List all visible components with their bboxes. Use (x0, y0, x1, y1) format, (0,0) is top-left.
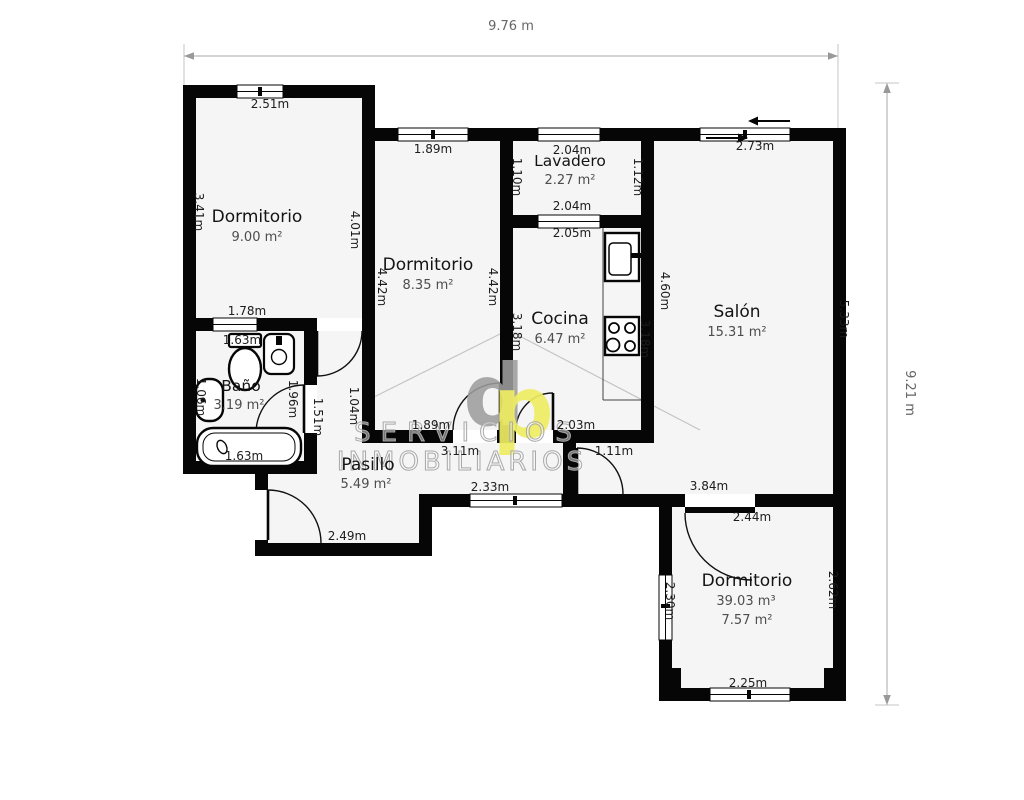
dim-cocina-top: 2.05m (553, 226, 591, 240)
dim-bano-top: 1.78m (228, 304, 266, 318)
arrow-left-icon (184, 52, 194, 60)
dim-dorm3-top: 2.44m (733, 510, 771, 524)
overall-height-label: 9.21 m (902, 370, 917, 416)
dim-cocina-left: 3.18m (510, 313, 524, 351)
dim-salon-right: 5.33m (837, 300, 851, 338)
dim-dorm2-bottom: 1.89m (412, 418, 450, 432)
overall-width-label: 9.76 m (488, 19, 534, 34)
dim-pasillo-mid: 3.11m (441, 444, 479, 458)
dim-bano-top-inner: 1.63m (223, 333, 261, 347)
room-name-cocina: Cocina (531, 309, 589, 329)
window-dormitorio2-icon (398, 128, 468, 141)
floorplan-drawing: 9.76 m 9.21 m (0, 0, 1024, 800)
room-name-dormitorio2: Dormitorio (383, 255, 474, 275)
dim-lavadero-bottom: 2.04m (553, 199, 591, 213)
window-pasillo-icon (470, 494, 562, 507)
dim-hall-right: 3.84m (690, 479, 728, 493)
dim-dorm1-left: 3.41m (192, 193, 206, 231)
dim-pasillo-window: 2.33m (471, 480, 509, 494)
room-name-salon: Salón (713, 302, 760, 322)
dim-lavadero-right: 1.12m (631, 158, 645, 196)
dim-pasillo-left: 1.51m (311, 398, 325, 436)
arrow-up-icon (883, 83, 891, 93)
dim-dorm2-right: 4.42m (486, 268, 500, 306)
dim-dorm3-bottom: 2.25m (729, 676, 767, 690)
dim-bano-left: 1.06m (194, 378, 208, 416)
room-name-dormitorio3: Dormitorio (702, 571, 793, 591)
dim-dorm3-left: 2.30m (663, 582, 677, 620)
dimension-right: 9.21 m (875, 83, 917, 705)
bathroom-sink-icon (264, 334, 294, 374)
room-area-pasillo: 5.49 m² (341, 477, 392, 492)
stove-icon (605, 317, 639, 355)
room-area-dormitorio3: 7.57 m² (722, 613, 773, 628)
dim-pasillo-bottom: 2.49m (328, 529, 366, 543)
dim-hall-door: 1.11m (595, 444, 633, 458)
room-name-bano: Baño (221, 377, 260, 395)
dim-cocina-right: 3.18m (638, 320, 652, 358)
room-name-dormitorio1: Dormitorio (212, 207, 303, 227)
arrow-right-icon (828, 52, 838, 60)
room-area-dormitorio2: 8.35 m² (403, 278, 454, 293)
window-bano-icon (213, 318, 257, 331)
dim-dorm3-right: 2.62m (826, 571, 840, 609)
room-name-pasillo: Pasillo (341, 455, 394, 475)
room-area-salon: 15.31 m² (707, 325, 766, 340)
dim-salon-top: 2.73m (736, 139, 774, 153)
dim-dorm1-top: 2.51m (251, 97, 289, 111)
room-volume-dormitorio3: 39.03 m³ (716, 594, 775, 609)
dim-bano-right: 1.96m (286, 380, 300, 418)
dim-salon-left: 4.60m (658, 272, 672, 310)
floorplan-page: 9.76 m 9.21 m (0, 0, 1024, 800)
dim-lavadero-top: 2.04m (553, 143, 591, 157)
dim-dorm2-left: 4.42m (375, 268, 389, 306)
room-area-cocina: 6.47 m² (535, 332, 586, 347)
arrow-down-icon (883, 695, 891, 705)
window-lavadero-icon (538, 128, 600, 141)
kitchen-sink-icon (605, 233, 641, 281)
room-area-dormitorio1: 9.00 m² (232, 230, 283, 245)
dim-dorm1-right: 4.01m (348, 211, 362, 249)
dim-pasillo-right: 1.04m (347, 387, 361, 425)
dim-cocina-bottom: 2.03m (557, 418, 595, 432)
room-area-lavadero: 2.27 m² (545, 173, 596, 188)
dim-bano-tub: 1.63m (225, 449, 263, 463)
dim-dorm2-top: 1.89m (414, 142, 452, 156)
entry-arrow-left-icon (748, 117, 790, 126)
room-area-bano: 3.19 m² (214, 398, 265, 413)
dim-lavadero-left: 1.10m (510, 158, 524, 196)
